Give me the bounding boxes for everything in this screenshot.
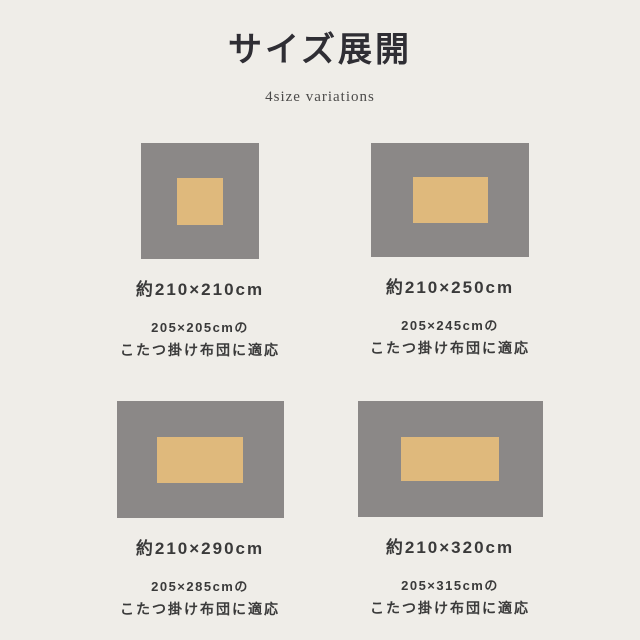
header: サイズ展開 4size variations xyxy=(0,0,640,105)
size-label: 約210×290cm xyxy=(136,540,264,557)
compatible-futon-size: 205×205cmの xyxy=(151,321,249,334)
compatible-futon-size: 205×315cmの xyxy=(401,579,499,592)
size-variation-card-210x290: 約210×290cm 205×285cmの こたつ掛け布団に適応 xyxy=(75,401,325,617)
compatible-futon-note: こたつ掛け布団に適応 xyxy=(120,602,280,617)
size-variation-card-210x320: 約210×320cm 205×315cmの こたつ掛け布団に適応 xyxy=(325,401,575,617)
page-title: サイズ展開 xyxy=(0,31,640,70)
compatible-futon-note: こたつ掛け布団に適応 xyxy=(120,343,280,358)
page-subtitle: 4size variations xyxy=(0,89,640,105)
kotatsu-table-rect xyxy=(401,437,499,481)
rug-size-diagram xyxy=(371,143,529,257)
rug-size-diagram xyxy=(358,401,543,517)
compatible-futon-size: 205×285cmの xyxy=(151,580,249,593)
compatible-futon-note: こたつ掛け布団に適応 xyxy=(370,601,530,616)
compatible-futon-size: 205×245cmの xyxy=(401,319,499,332)
compatible-futon-note: こたつ掛け布団に適応 xyxy=(370,341,530,356)
kotatsu-table-rect xyxy=(157,437,243,483)
kotatsu-table-rect xyxy=(177,178,223,225)
rug-size-diagram xyxy=(141,143,259,259)
size-label: 約210×210cm xyxy=(136,281,264,298)
rug-size-diagram xyxy=(117,401,284,518)
size-variation-grid: 約210×210cm 205×205cmの こたつ掛け布団に適応 約210×25… xyxy=(0,143,640,617)
size-label: 約210×250cm xyxy=(386,279,514,296)
size-variation-card-210x250: 約210×250cm 205×245cmの こたつ掛け布団に適応 xyxy=(325,143,575,358)
size-variation-card-210x210: 約210×210cm 205×205cmの こたつ掛け布団に適応 xyxy=(75,143,325,358)
size-label: 約210×320cm xyxy=(386,539,514,556)
kotatsu-table-rect xyxy=(413,177,488,223)
